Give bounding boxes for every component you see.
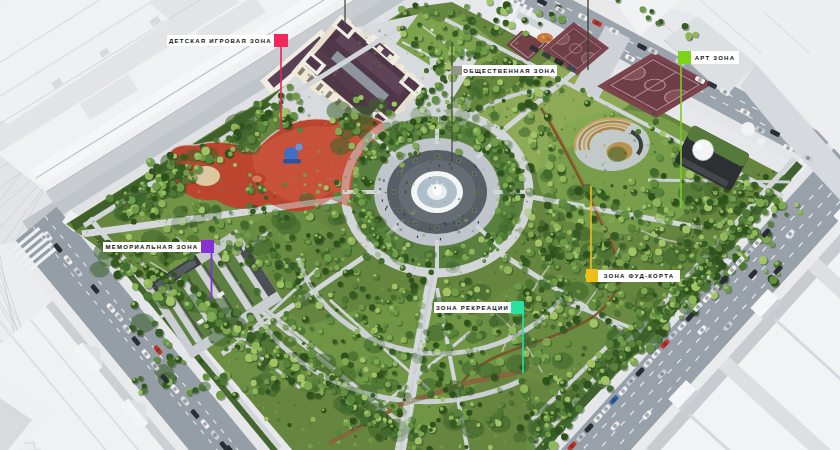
svg-text:ЗОНА РЕКРЕАЦИИ: ЗОНА РЕКРЕАЦИИ	[436, 305, 509, 311]
svg-text:ЗОНА ФУД-КОРТА: ЗОНА ФУД-КОРТА	[604, 273, 675, 279]
svg-text:ДЕТСКАЯ ИГРОВАЯ ЗОНА: ДЕТСКАЯ ИГРОВАЯ ЗОНА	[169, 38, 272, 44]
svg-text:МЕМОРИАЛЬНАЯ ЗОНА: МЕМОРИАЛЬНАЯ ЗОНА	[106, 244, 199, 250]
svg-text:ОБЩЕСТВЕННАЯ ЗОНА: ОБЩЕСТВЕННАЯ ЗОНА	[463, 68, 556, 74]
svg-text:АРТ ЗОНА: АРТ ЗОНА	[695, 55, 736, 61]
